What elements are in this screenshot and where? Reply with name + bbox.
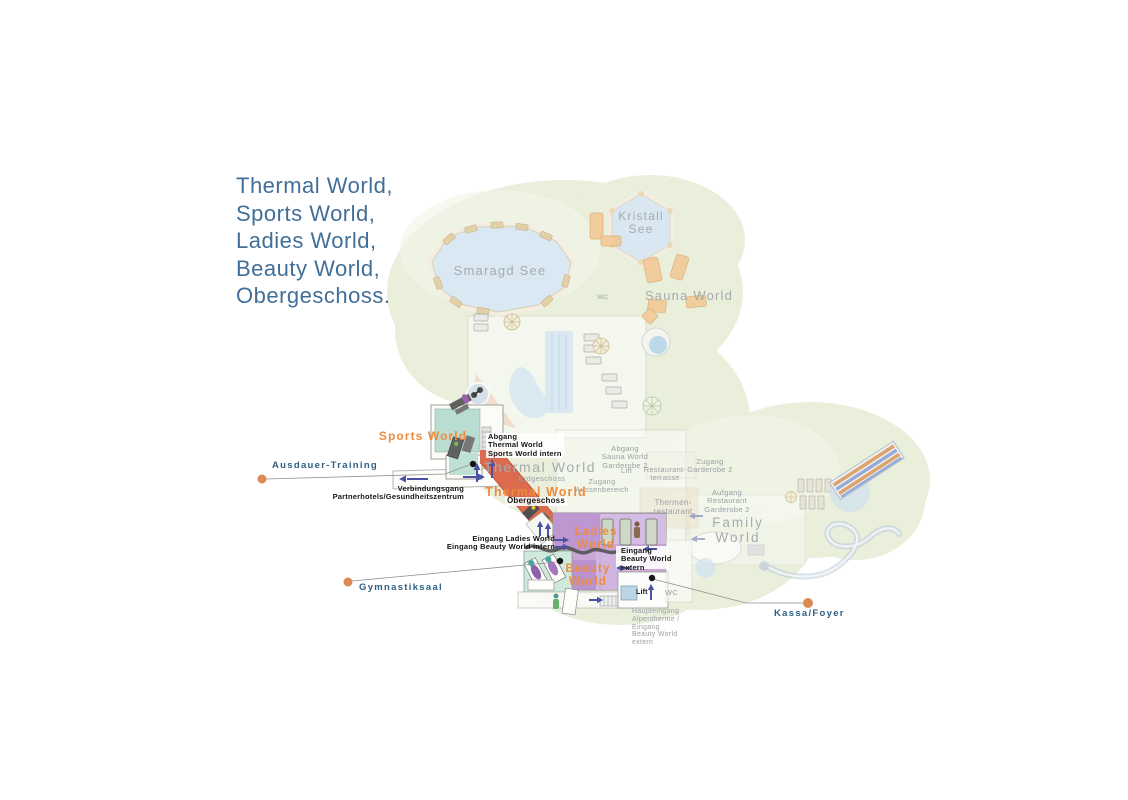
label-thermen-restaurant: Thermen- restaurant: [653, 499, 692, 517]
label-beauty-world: Beauty World: [566, 563, 611, 589]
brochure-page: Thermal World, Sports World, Ladies Worl…: [0, 0, 1128, 800]
label-ladies-world: Ladies World: [574, 526, 617, 552]
callout-kassa-foyer: Kassa/Foyer: [774, 609, 845, 620]
label-eingang-ladies-world: Eingang Ladies World Eingang Beauty Worl…: [447, 535, 555, 552]
label-lift-obergeschoss: Lift: [621, 467, 632, 475]
callout-ausdauer-training: Ausdauer-Training: [272, 461, 378, 472]
label-erdgeschoss: Erdgeschoss: [519, 475, 566, 483]
label-abgang-thermal-world: Abgang Thermal World Sports World intern: [486, 433, 564, 458]
label-kristall-see: Kristall See: [618, 210, 664, 237]
page-title: Thermal World, Sports World, Ladies Worl…: [236, 172, 393, 310]
facility-map: [0, 0, 1128, 800]
label-sauna-world: Sauna World: [645, 289, 733, 304]
label-smaragd-see: Smaragd See: [454, 264, 547, 279]
label-haupteingang: Haupteingang Alpentherme / Eingang Beaut…: [632, 608, 679, 647]
label-restaurant-terrasse: Restaurant- terrasse: [644, 466, 687, 483]
label-verbindungsgang: Verbindungsgang Partnerhotels/Gesundheit…: [333, 485, 464, 502]
callout-gymnastiksaal: Gymnastiksaal: [359, 583, 443, 594]
label-aufgang-restaurant: Aufgang Restaurant Garderobe 2: [704, 489, 749, 514]
label-zugang-garderobe-2: Zugang Garderobe 2: [687, 458, 732, 475]
label-wc-sauna: WC: [597, 294, 608, 301]
label-family-world: Family World: [712, 515, 764, 545]
map-graphic: [0, 0, 1128, 800]
label-obergeschoss: Obergeschoss: [505, 497, 567, 506]
label-eingang-beauty-world-extern: Eingang Beauty World extern: [621, 547, 672, 572]
label-sports-world: Sports World: [379, 430, 467, 443]
label-lift-erdgeschoss: Lift: [636, 589, 648, 597]
label-wc-foyer: WC: [665, 589, 678, 597]
